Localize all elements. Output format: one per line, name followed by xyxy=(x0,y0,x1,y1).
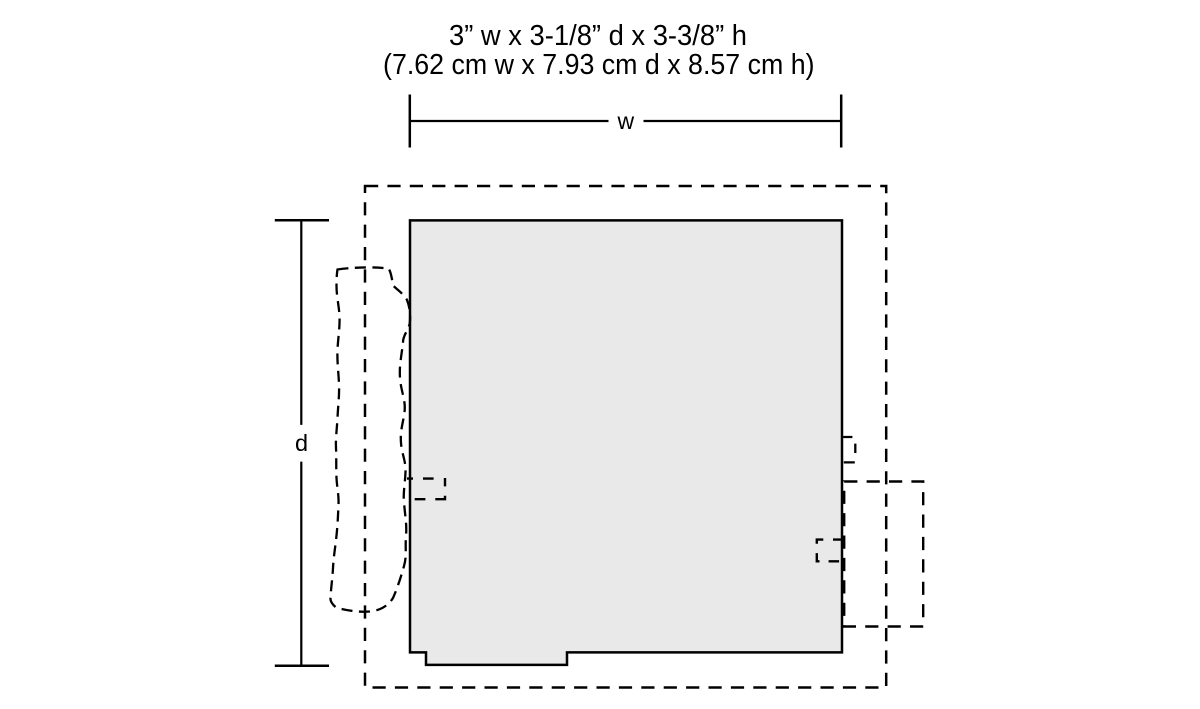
svg-text:w: w xyxy=(616,108,634,134)
svg-text:3” w x 3-1/8” d x 3-3/8” h: 3” w x 3-1/8” d x 3-3/8” h xyxy=(449,20,747,52)
svg-text:(7.62 cm w x 7.93 cm d x 8.57: (7.62 cm w x 7.93 cm d x 8.57 cm h) xyxy=(383,49,815,81)
svg-text:d: d xyxy=(295,430,308,456)
